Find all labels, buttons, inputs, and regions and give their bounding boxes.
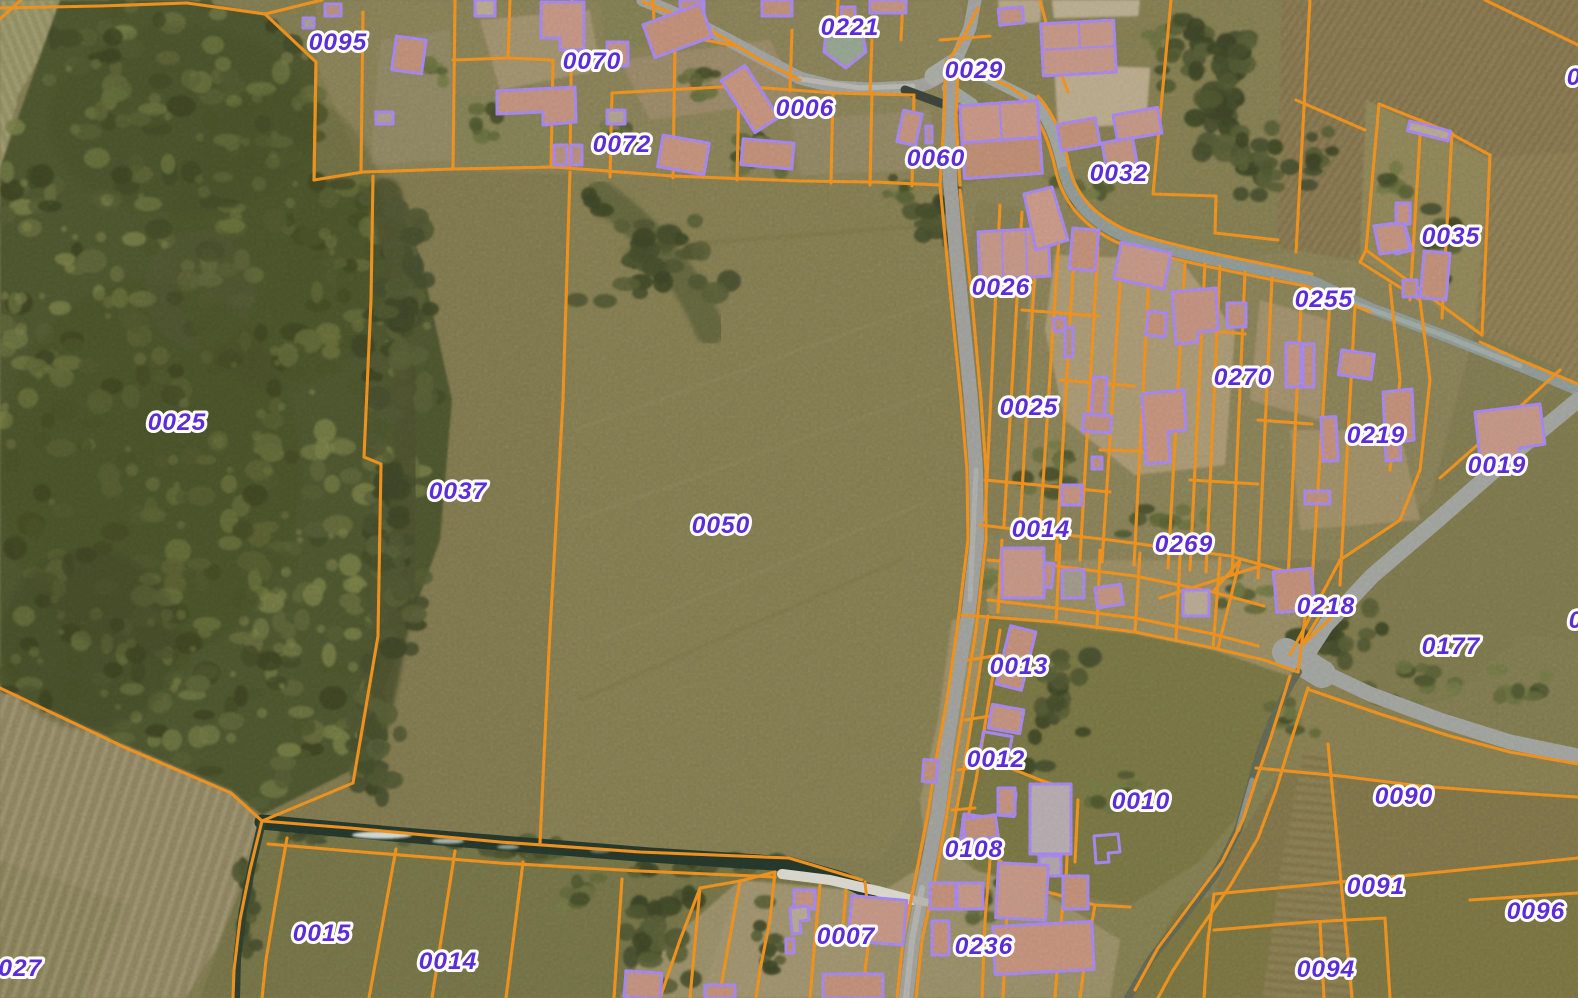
svg-text:0065: 0065 (1567, 64, 1578, 91)
svg-text:0096: 0096 (1507, 898, 1566, 925)
svg-text:0221: 0221 (821, 14, 880, 41)
svg-text:0013: 0013 (990, 653, 1049, 680)
svg-text:0029: 0029 (945, 57, 1004, 84)
svg-text:0108: 0108 (945, 836, 1004, 863)
svg-text:0177: 0177 (1422, 633, 1481, 660)
svg-text:0027: 0027 (0, 955, 43, 982)
svg-text:0026: 0026 (972, 274, 1031, 301)
svg-text:0006: 0006 (776, 95, 835, 122)
svg-text:0050: 0050 (692, 512, 751, 539)
svg-text:0255: 0255 (1295, 286, 1354, 313)
svg-text:0025: 0025 (1000, 394, 1059, 421)
svg-text:0176: 0176 (1569, 607, 1578, 634)
svg-text:0070: 0070 (563, 48, 622, 75)
svg-text:0072: 0072 (593, 131, 652, 158)
svg-text:0014: 0014 (1012, 516, 1071, 543)
svg-text:0012: 0012 (967, 746, 1026, 773)
svg-text:0035: 0035 (1422, 223, 1481, 250)
svg-text:0091: 0091 (1347, 873, 1406, 900)
svg-text:0010: 0010 (1112, 788, 1171, 815)
svg-text:0090: 0090 (1375, 783, 1434, 810)
svg-text:0019: 0019 (1468, 452, 1527, 479)
svg-text:0269: 0269 (1155, 531, 1214, 558)
svg-text:0037: 0037 (429, 478, 488, 505)
svg-text:0025: 0025 (148, 409, 207, 436)
svg-text:0219: 0219 (1347, 422, 1406, 449)
svg-text:0007: 0007 (817, 923, 876, 950)
svg-text:0014: 0014 (419, 948, 478, 975)
svg-text:0270: 0270 (1214, 364, 1273, 391)
svg-text:0094: 0094 (1297, 956, 1356, 983)
svg-text:0060: 0060 (907, 145, 966, 172)
svg-text:0095: 0095 (309, 29, 368, 56)
svg-text:0236: 0236 (955, 933, 1014, 960)
svg-text:0032: 0032 (1090, 160, 1149, 187)
svg-text:0015: 0015 (293, 920, 352, 947)
svg-text:0218: 0218 (1297, 593, 1356, 620)
